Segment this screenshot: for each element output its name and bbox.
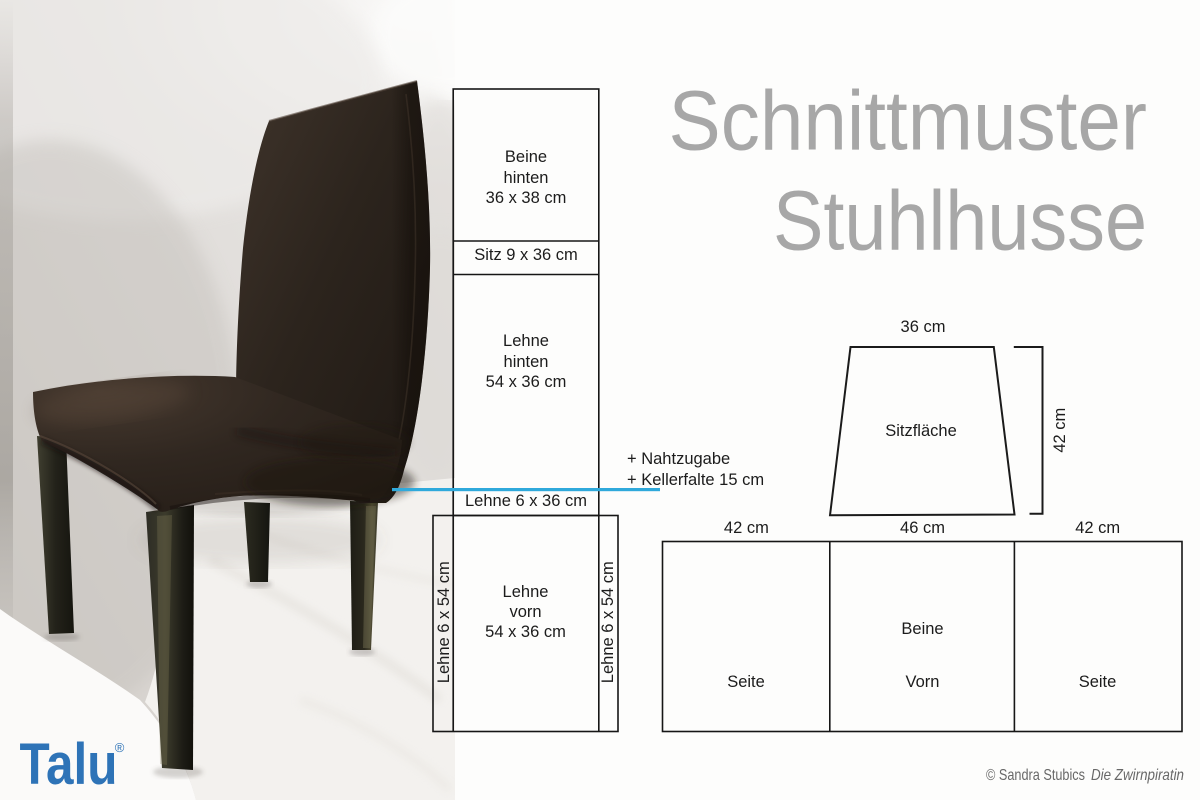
svg-text:Talu: Talu (20, 732, 118, 797)
svg-text:Die Zwirnpiratin: Die Zwirnpiratin (1091, 767, 1184, 784)
svg-text:®: ® (115, 740, 125, 755)
svg-text:© Sandra Stubics: © Sandra Stubics (986, 767, 1085, 784)
svg-text:Stuhlhusse: Stuhlhusse (773, 174, 1147, 268)
svg-text:Schnittmuster: Schnittmuster (669, 73, 1148, 167)
